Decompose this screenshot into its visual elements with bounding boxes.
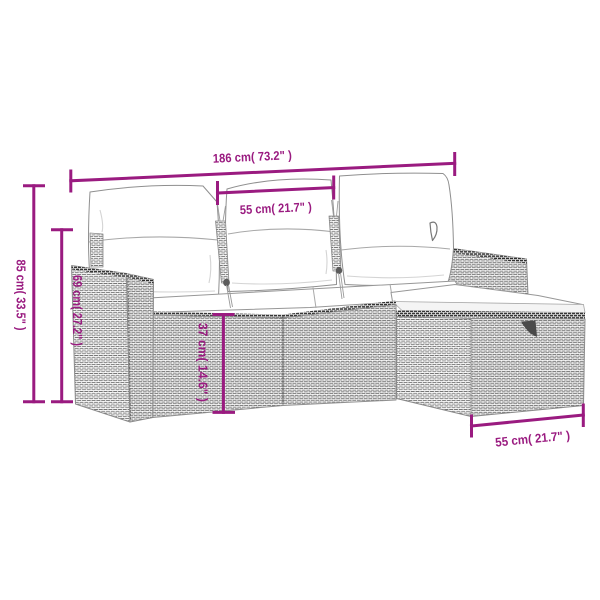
svg-text:85 cm( 33.5" ): 85 cm( 33.5" ) [14,260,28,331]
svg-text:69 cm( 27.2" ): 69 cm( 27.2" ) [70,275,84,346]
svg-text:37 cm( 14.6" ): 37 cm( 14.6" ) [195,323,209,402]
